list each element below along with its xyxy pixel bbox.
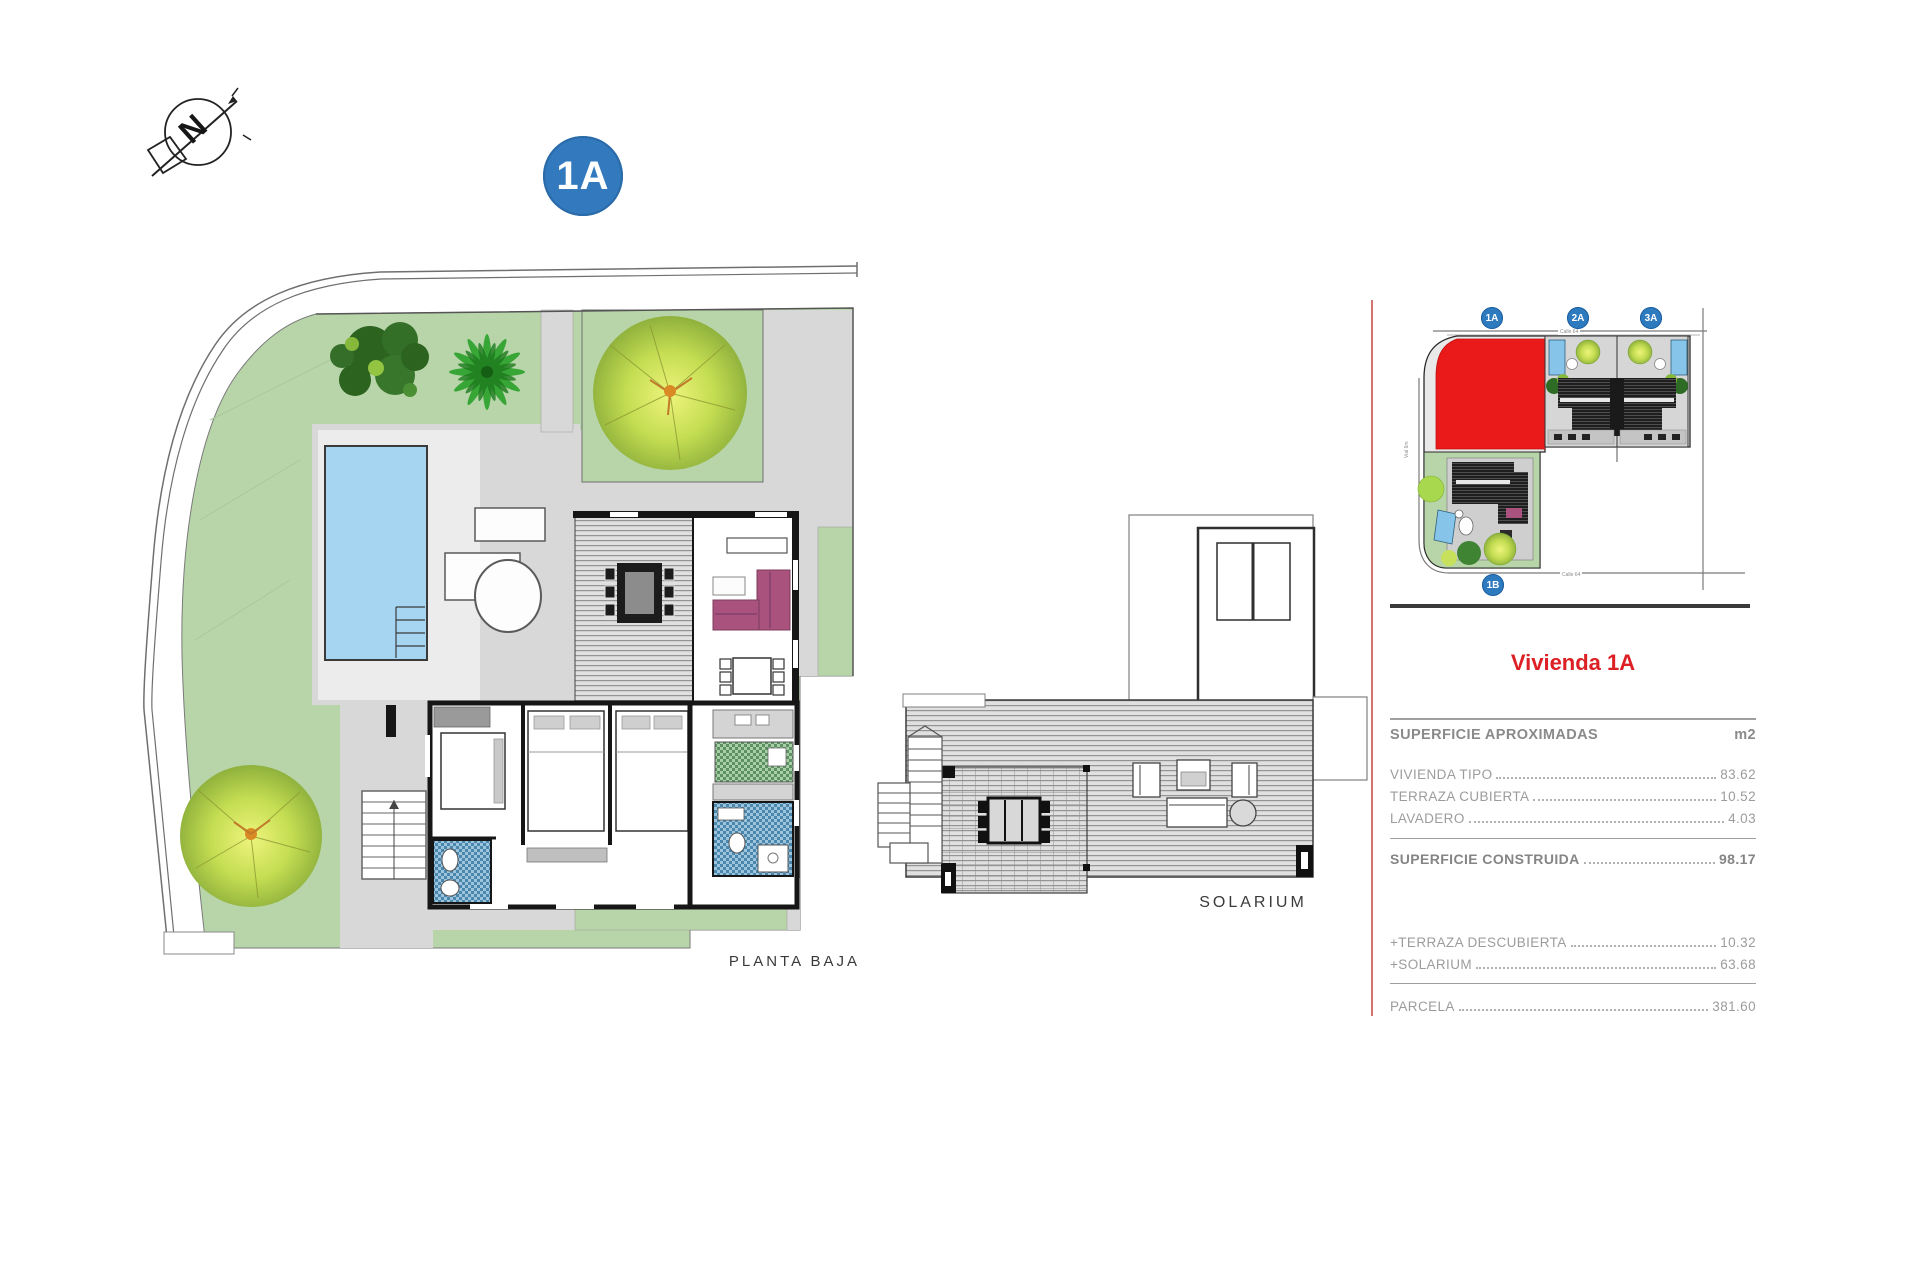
row-label: +TERRAZA DESCUBIERTA bbox=[1390, 935, 1567, 950]
table-header-unit: m2 bbox=[1734, 727, 1756, 743]
kitchen bbox=[713, 710, 793, 800]
plot-1a-highlight bbox=[1436, 339, 1545, 449]
solarium-plan-drawing bbox=[878, 515, 1367, 893]
bathroom-1 bbox=[433, 840, 491, 903]
bed-3 bbox=[616, 711, 688, 831]
dot-leader bbox=[1496, 777, 1716, 779]
plan-graphics bbox=[0, 0, 1920, 1280]
solarium-caption: SOLARIUM bbox=[1178, 894, 1328, 912]
table-row: +TERRAZA DESCUBIERTA 10.32 bbox=[1390, 935, 1756, 950]
main-floor-plan-drawing bbox=[144, 262, 857, 954]
bathroom-2 bbox=[713, 802, 793, 876]
table-total-row: SUPERFICIE CONSTRUIDA 98.17 bbox=[1390, 851, 1756, 867]
row-label: +SOLARIUM bbox=[1390, 957, 1472, 972]
plan-sheet: N 1A PLANTA BAJA SOLARIUM 1A 2A 3A 1B Ca… bbox=[0, 0, 1920, 1280]
street-label-side: Vial 6m bbox=[1404, 439, 1410, 460]
swimming-pool bbox=[325, 446, 427, 660]
dot-leader bbox=[1571, 945, 1717, 947]
site-badge-1a: 1A bbox=[1481, 307, 1503, 329]
table-row: TERRAZA CUBIERTA 10.52 bbox=[1390, 789, 1756, 804]
row-value: 10.32 bbox=[1720, 935, 1756, 950]
planta-baja-caption: PLANTA BAJA bbox=[695, 953, 860, 970]
row-label: SUPERFICIE CONSTRUIDA bbox=[1390, 851, 1580, 867]
table-header-label: SUPERFICIE APROXIMADAS bbox=[1390, 727, 1598, 743]
tree-large-1 bbox=[593, 316, 747, 470]
bed-1 bbox=[441, 733, 505, 809]
tv-cabinet bbox=[727, 538, 787, 553]
areas-table: SUPERFICIE APROXIMADAS m2 VIVIENDA TIPO … bbox=[1390, 712, 1756, 1024]
dot-leader bbox=[1476, 967, 1716, 969]
row-label: LAVADERO bbox=[1390, 811, 1465, 826]
table-rule-top bbox=[1390, 718, 1756, 720]
row-label: TERRAZA CUBIERTA bbox=[1390, 789, 1529, 804]
dot-leader bbox=[1533, 799, 1716, 801]
row-label: PARCELA bbox=[1390, 999, 1455, 1014]
dot-leader bbox=[1469, 821, 1724, 823]
row-label: VIVIENDA TIPO bbox=[1390, 767, 1492, 782]
row-value: 83.62 bbox=[1720, 767, 1756, 782]
dining-table-white bbox=[720, 658, 784, 695]
row-value: 63.68 bbox=[1720, 957, 1756, 972]
tree-large-2 bbox=[180, 765, 322, 907]
unit-badge: 1A bbox=[543, 136, 623, 216]
exterior-stairs bbox=[362, 791, 426, 879]
row-value: 10.52 bbox=[1720, 789, 1756, 804]
table-parcel-row: PARCELA 381.60 bbox=[1390, 999, 1756, 1014]
street-label-bottom: Calle 64 bbox=[1560, 572, 1582, 578]
table-row: VIVIENDA TIPO 83.62 bbox=[1390, 767, 1756, 782]
site-badge-3a: 3A bbox=[1640, 307, 1662, 329]
table-row: LAVADERO 4.03 bbox=[1390, 811, 1756, 826]
dot-leader bbox=[1459, 1009, 1708, 1011]
site-map-drawing bbox=[1390, 308, 1750, 608]
coffee-table bbox=[713, 577, 745, 595]
solarium-table bbox=[978, 798, 1050, 843]
site-badge-1b: 1B bbox=[1482, 574, 1504, 596]
table-rule-bottom bbox=[1390, 983, 1756, 984]
bed-2 bbox=[528, 711, 604, 831]
row-value: 98.17 bbox=[1719, 851, 1756, 867]
unit-title: Vivienda 1A bbox=[1390, 650, 1756, 676]
dining-table-deck bbox=[605, 563, 674, 623]
street-label-top: Calle 64 bbox=[1558, 329, 1580, 335]
table-rule-mid bbox=[1390, 838, 1756, 839]
row-value: 4.03 bbox=[1728, 811, 1756, 826]
red-divider-line bbox=[1371, 300, 1373, 1016]
table-row: +SOLARIUM 63.68 bbox=[1390, 957, 1756, 972]
dot-leader bbox=[1584, 862, 1715, 864]
row-value: 381.60 bbox=[1712, 999, 1756, 1014]
table-header: SUPERFICIE APROXIMADAS m2 bbox=[1390, 727, 1756, 743]
site-badge-2a: 2A bbox=[1567, 307, 1589, 329]
